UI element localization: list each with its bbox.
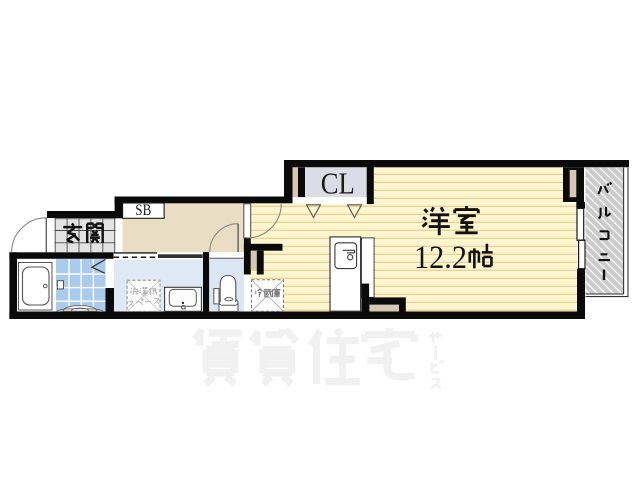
svg-text:SB: SB	[135, 202, 151, 219]
svg-text:CL: CL	[321, 166, 355, 201]
svg-text:12.2: 12.2	[414, 240, 467, 276]
